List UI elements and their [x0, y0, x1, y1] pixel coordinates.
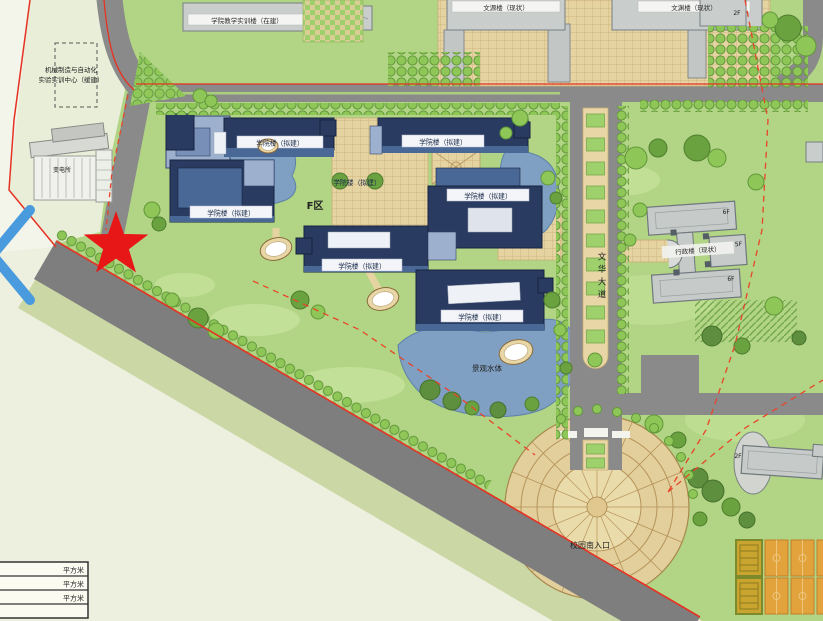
orchard-grid	[388, 52, 480, 86]
college-building-label: 学院楼（拟建）	[207, 209, 255, 218]
college-building-f	[416, 270, 553, 331]
tree-row	[640, 100, 808, 112]
wenyuan-right-label: 文渊楼（现状）	[671, 3, 717, 12]
garden-plots	[303, 0, 363, 42]
college-building-label: 学院楼（拟建）	[458, 313, 506, 322]
mechanical-site-label-line1: 机械制造与自动化	[45, 65, 98, 74]
area-table-row: 平方米	[63, 594, 84, 603]
plan-canvas: 机械制造与自动化 实验实训中心（缓建） 变电所 学院教学实训楼（在建） 文源楼（…	[0, 0, 823, 621]
admin-east-floor: 5F	[735, 241, 743, 249]
area-table: 平方米 平方米 平方米	[0, 562, 88, 618]
mechanical-site-label-line2: 实验实训中心（缓建）	[39, 75, 104, 84]
tree-row	[156, 103, 560, 115]
southeast-floor-label: 2F	[734, 453, 742, 460]
college-building-label: 学院楼（拟建）	[333, 178, 381, 187]
wenhua-avenue-label: 文华大道	[596, 251, 606, 302]
area-table-row: 平方米	[63, 566, 84, 575]
admin-north-floor: 6F	[722, 209, 730, 217]
college-building-label: 学院楼（拟建）	[256, 139, 304, 148]
tennis-courts	[736, 540, 762, 614]
area-table-row: 平方米	[63, 580, 84, 589]
east-edge-building	[806, 142, 823, 162]
substation-label: 变电所	[53, 166, 71, 174]
college-building-label: 学院楼（拟建）	[419, 138, 467, 147]
college-building-label: 学院楼（拟建）	[464, 192, 512, 201]
admin-south-floor: 6F	[727, 275, 735, 283]
campus-master-plan: 机械制造与自动化 实验实训中心（缓建） 变电所 学院教学实训楼（在建） 文源楼（…	[0, 0, 823, 621]
college-building-label: 学院楼（拟建）	[338, 262, 386, 271]
wenyuan-left-label: 文源楼（现状）	[483, 3, 529, 12]
northeast-floor-label: 2F	[733, 10, 741, 17]
water-label: 景观水体	[472, 363, 502, 373]
training-building-label: 学院教学实训楼（在建）	[211, 16, 283, 25]
road-median-line	[170, 92, 560, 95]
south-entrance-label: 校园南入口	[570, 540, 610, 550]
tree-row	[617, 106, 629, 394]
admin-side-road	[641, 355, 699, 395]
tree-row	[556, 106, 568, 440]
zone-f-label: F区	[307, 200, 324, 212]
